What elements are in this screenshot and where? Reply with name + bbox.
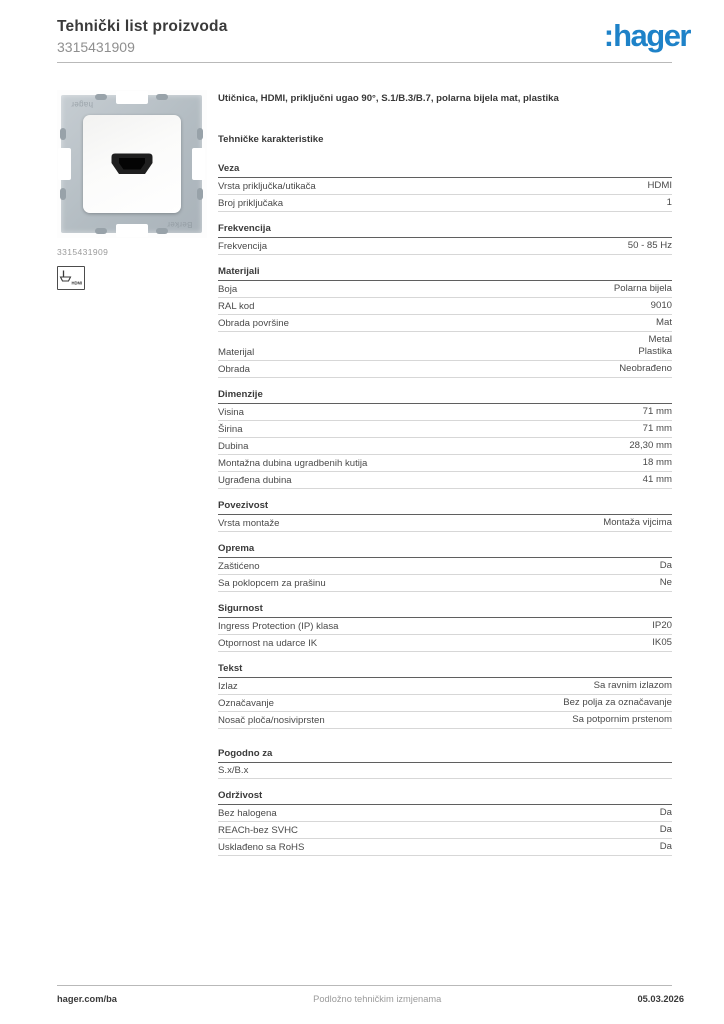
spec-section: OpremaZaštićenoDaSa poklopcem za prašinu… [218, 543, 672, 592]
spec-row: Broj priključaka1 [218, 195, 672, 212]
footer: hager.com/ba Podložno tehničkim izmjenam… [57, 994, 684, 1004]
mounting-tab [116, 91, 148, 104]
spec-row-value: Mat [656, 317, 672, 329]
header-titles: Tehnički list proizvoda 3315431909 [57, 18, 228, 55]
spec-row: ObradaNeobrađeno [218, 361, 672, 378]
frame-claw [156, 94, 168, 100]
spec-row-value: 1 [667, 197, 672, 209]
spec-row: Nosač ploča/nosiviprstenSa potpornim prs… [218, 712, 672, 729]
spec-row-label: RAL kod [218, 301, 254, 312]
frame-claw [197, 188, 203, 200]
spec-row-label: Označavanje [218, 698, 274, 709]
hdmi-icon-label: HDMI [72, 281, 83, 286]
spec-row: S.x/B.x [218, 763, 672, 779]
frame-claw [197, 128, 203, 140]
spec-row-value: Da [660, 807, 672, 819]
hdmi-port-icon [111, 153, 153, 175]
spec-section: TekstIzlazSa ravnim izlazomOznačavanjeBe… [218, 663, 672, 729]
spec-row-value: Ne [660, 577, 672, 589]
image-watermark-top: hager [71, 100, 93, 109]
header-divider [57, 62, 672, 63]
spec-row-value: 28,30 mm [629, 440, 672, 452]
spec-row-value: Da [660, 841, 672, 853]
footer-disclaimer: Podložno tehničkim izmjenama [313, 994, 441, 1004]
hager-logo: :hager [604, 20, 690, 51]
spec-section-heading: Dimenzije [218, 389, 672, 404]
spec-row-label: Širina [218, 424, 243, 435]
spec-row-label: Montažna dubina ugradbenih kutija [218, 458, 367, 469]
mounting-tab [58, 148, 71, 180]
spec-row-label: Frekvencija [218, 241, 267, 252]
spec-section: MaterijaliBojaPolarna bijelaRAL kod9010O… [218, 266, 672, 378]
spec-section-heading: Veza [218, 163, 672, 178]
header-product-number: 3315431909 [57, 39, 228, 55]
spec-section: DimenzijeVisina71 mmŠirina71 mmDubina28,… [218, 389, 672, 489]
spec-section: OdrživostBez halogenaDaREACh-bez SVHCDaU… [218, 790, 672, 856]
spec-row: RAL kod9010 [218, 298, 672, 315]
spec-row-value: 71 mm [643, 406, 672, 418]
spec-row-label: Visina [218, 407, 244, 418]
spec-row-label: Nosač ploča/nosiviprsten [218, 715, 325, 726]
spec-section-heading: Sigurnost [218, 603, 672, 618]
spec-section: FrekvencijaFrekvencija50 - 85 Hz [218, 223, 672, 255]
spec-section-heading: Pogodno za [218, 748, 672, 763]
spec-section-heading: Održivost [218, 790, 672, 805]
spec-row: Usklađeno sa RoHSDa [218, 839, 672, 856]
spec-row-label: Bez halogena [218, 808, 277, 819]
spec-row: Frekvencija50 - 85 Hz [218, 238, 672, 255]
spec-row-value: 41 mm [643, 474, 672, 486]
spec-row-value: 71 mm [643, 423, 672, 435]
spec-section: PovezivostVrsta montažeMontaža vijcima [218, 500, 672, 532]
spec-sections: VezaVrsta priključka/utikačaHDMIBroj pri… [218, 163, 672, 856]
spec-row-label: Zaštićeno [218, 561, 260, 572]
spec-row-value: Da [660, 824, 672, 836]
spec-row: Dubina28,30 mm [218, 438, 672, 455]
spec-row-label: Dubina [218, 441, 248, 452]
spec-row-label: Obrada površine [218, 318, 289, 329]
specs-title: Tehničke karakteristike [218, 134, 672, 145]
spec-row: Ugrađena dubina41 mm [218, 472, 672, 489]
frame-claw [60, 188, 66, 200]
spec-row: Ingress Protection (IP) klasaIP20 [218, 618, 672, 635]
spec-row-label: Ingress Protection (IP) klasa [218, 621, 339, 632]
spec-row-value: Metal Plastika [638, 334, 672, 358]
footer-website-link[interactable]: hager.com/ba [57, 994, 117, 1004]
spec-row-value: Bez polja za označavanje [563, 697, 672, 709]
spec-row: Vrsta priključka/utikačaHDMI [218, 178, 672, 195]
spec-section-heading: Materijali [218, 266, 672, 281]
spec-row-value: IK05 [652, 637, 672, 649]
spec-row-label: Ugrađena dubina [218, 475, 292, 486]
main-content: hager Berker [57, 90, 672, 867]
image-watermark-bottom: Berker [167, 220, 192, 229]
spec-row: ZaštićenoDa [218, 558, 672, 575]
spec-section: SigurnostIngress Protection (IP) klasaIP… [218, 603, 672, 652]
spec-row-label: Usklađeno sa RoHS [218, 842, 304, 853]
spec-section: Pogodno zaS.x/B.x [218, 748, 672, 779]
product-image: hager Berker [57, 90, 207, 238]
spec-section-heading: Frekvencija [218, 223, 672, 238]
frame-claw [95, 94, 107, 100]
mounting-tab [192, 148, 205, 180]
spec-row-label: S.x/B.x [218, 765, 248, 776]
spec-section-heading: Povezivost [218, 500, 672, 515]
spec-row: Montažna dubina ugradbenih kutija18 mm [218, 455, 672, 472]
spec-row-value: HDMI [647, 180, 672, 192]
spec-row: Visina71 mm [218, 404, 672, 421]
spec-row: Otpornost na udarce IKIK05 [218, 635, 672, 652]
spec-row-label: REACh-bez SVHC [218, 825, 298, 836]
spec-row: OznačavanjeBez polja za označavanje [218, 695, 672, 712]
frame-claw [60, 128, 66, 140]
spec-row: Širina71 mm [218, 421, 672, 438]
spec-row-label: Izlaz [218, 681, 238, 692]
spec-row-label: Otpornost na udarce IK [218, 638, 317, 649]
product-image-caption: 3315431909 [57, 247, 207, 257]
spec-section-heading: Tekst [218, 663, 672, 678]
spec-row-value: Sa ravnim izlazom [594, 680, 672, 692]
spec-row-value: 18 mm [643, 457, 672, 469]
spec-row: Obrada površineMat [218, 315, 672, 332]
spec-row-label: Vrsta montaže [218, 518, 280, 529]
spec-row-label: Sa poklopcem za prašinu [218, 578, 326, 589]
datasheet-page: Tehnički list proizvoda 3315431909 :hage… [0, 0, 724, 1024]
spec-row-label: Obrada [218, 364, 250, 375]
spec-row: Vrsta montažeMontaža vijcima [218, 515, 672, 532]
spec-row: REACh-bez SVHCDa [218, 822, 672, 839]
spec-row: IzlazSa ravnim izlazom [218, 678, 672, 695]
spec-row-value: Montaža vijcima [603, 517, 672, 529]
spec-row-value: 9010 [651, 300, 672, 312]
spec-row-value: Sa potpornim prstenom [572, 714, 672, 726]
spec-row-label: Vrsta priključka/utikača [218, 181, 316, 192]
hdmi-plug-icon: HDMI [57, 266, 85, 290]
spec-row-value: IP20 [652, 620, 672, 632]
right-column: Utičnica, HDMI, priključni ugao 90°, S.1… [218, 90, 672, 867]
spec-row: MaterijalMetal Plastika [218, 332, 672, 361]
spec-row-value: Neobrađeno [619, 363, 672, 375]
spec-section: VezaVrsta priključka/utikačaHDMIBroj pri… [218, 163, 672, 212]
product-description: Utičnica, HDMI, priključni ugao 90°, S.1… [218, 93, 672, 105]
spec-row-label: Boja [218, 284, 237, 295]
page-title: Tehnički list proizvoda [57, 18, 228, 36]
header: Tehnički list proizvoda 3315431909 :hage… [57, 18, 690, 55]
spec-row: BojaPolarna bijela [218, 281, 672, 298]
cover-plate [83, 115, 181, 213]
left-column: hager Berker [57, 90, 207, 867]
spec-section-heading: Oprema [218, 543, 672, 558]
spec-row-value: Polarna bijela [614, 283, 672, 295]
spec-row: Bez halogenaDa [218, 805, 672, 822]
logo-colon: : [604, 18, 613, 53]
footer-date: 05.03.2026 [637, 994, 684, 1004]
spec-row-value: 50 - 85 Hz [628, 240, 672, 252]
logo-text: hager [613, 18, 690, 53]
spec-row-label: Broj priključaka [218, 198, 283, 209]
frame-claw [156, 228, 168, 234]
spec-row-value: Da [660, 560, 672, 572]
mounting-tab [116, 224, 148, 237]
spec-row-label: Materijal [218, 347, 254, 358]
footer-divider [57, 985, 672, 986]
spec-row: Sa poklopcem za prašinuNe [218, 575, 672, 592]
frame-claw [95, 228, 107, 234]
